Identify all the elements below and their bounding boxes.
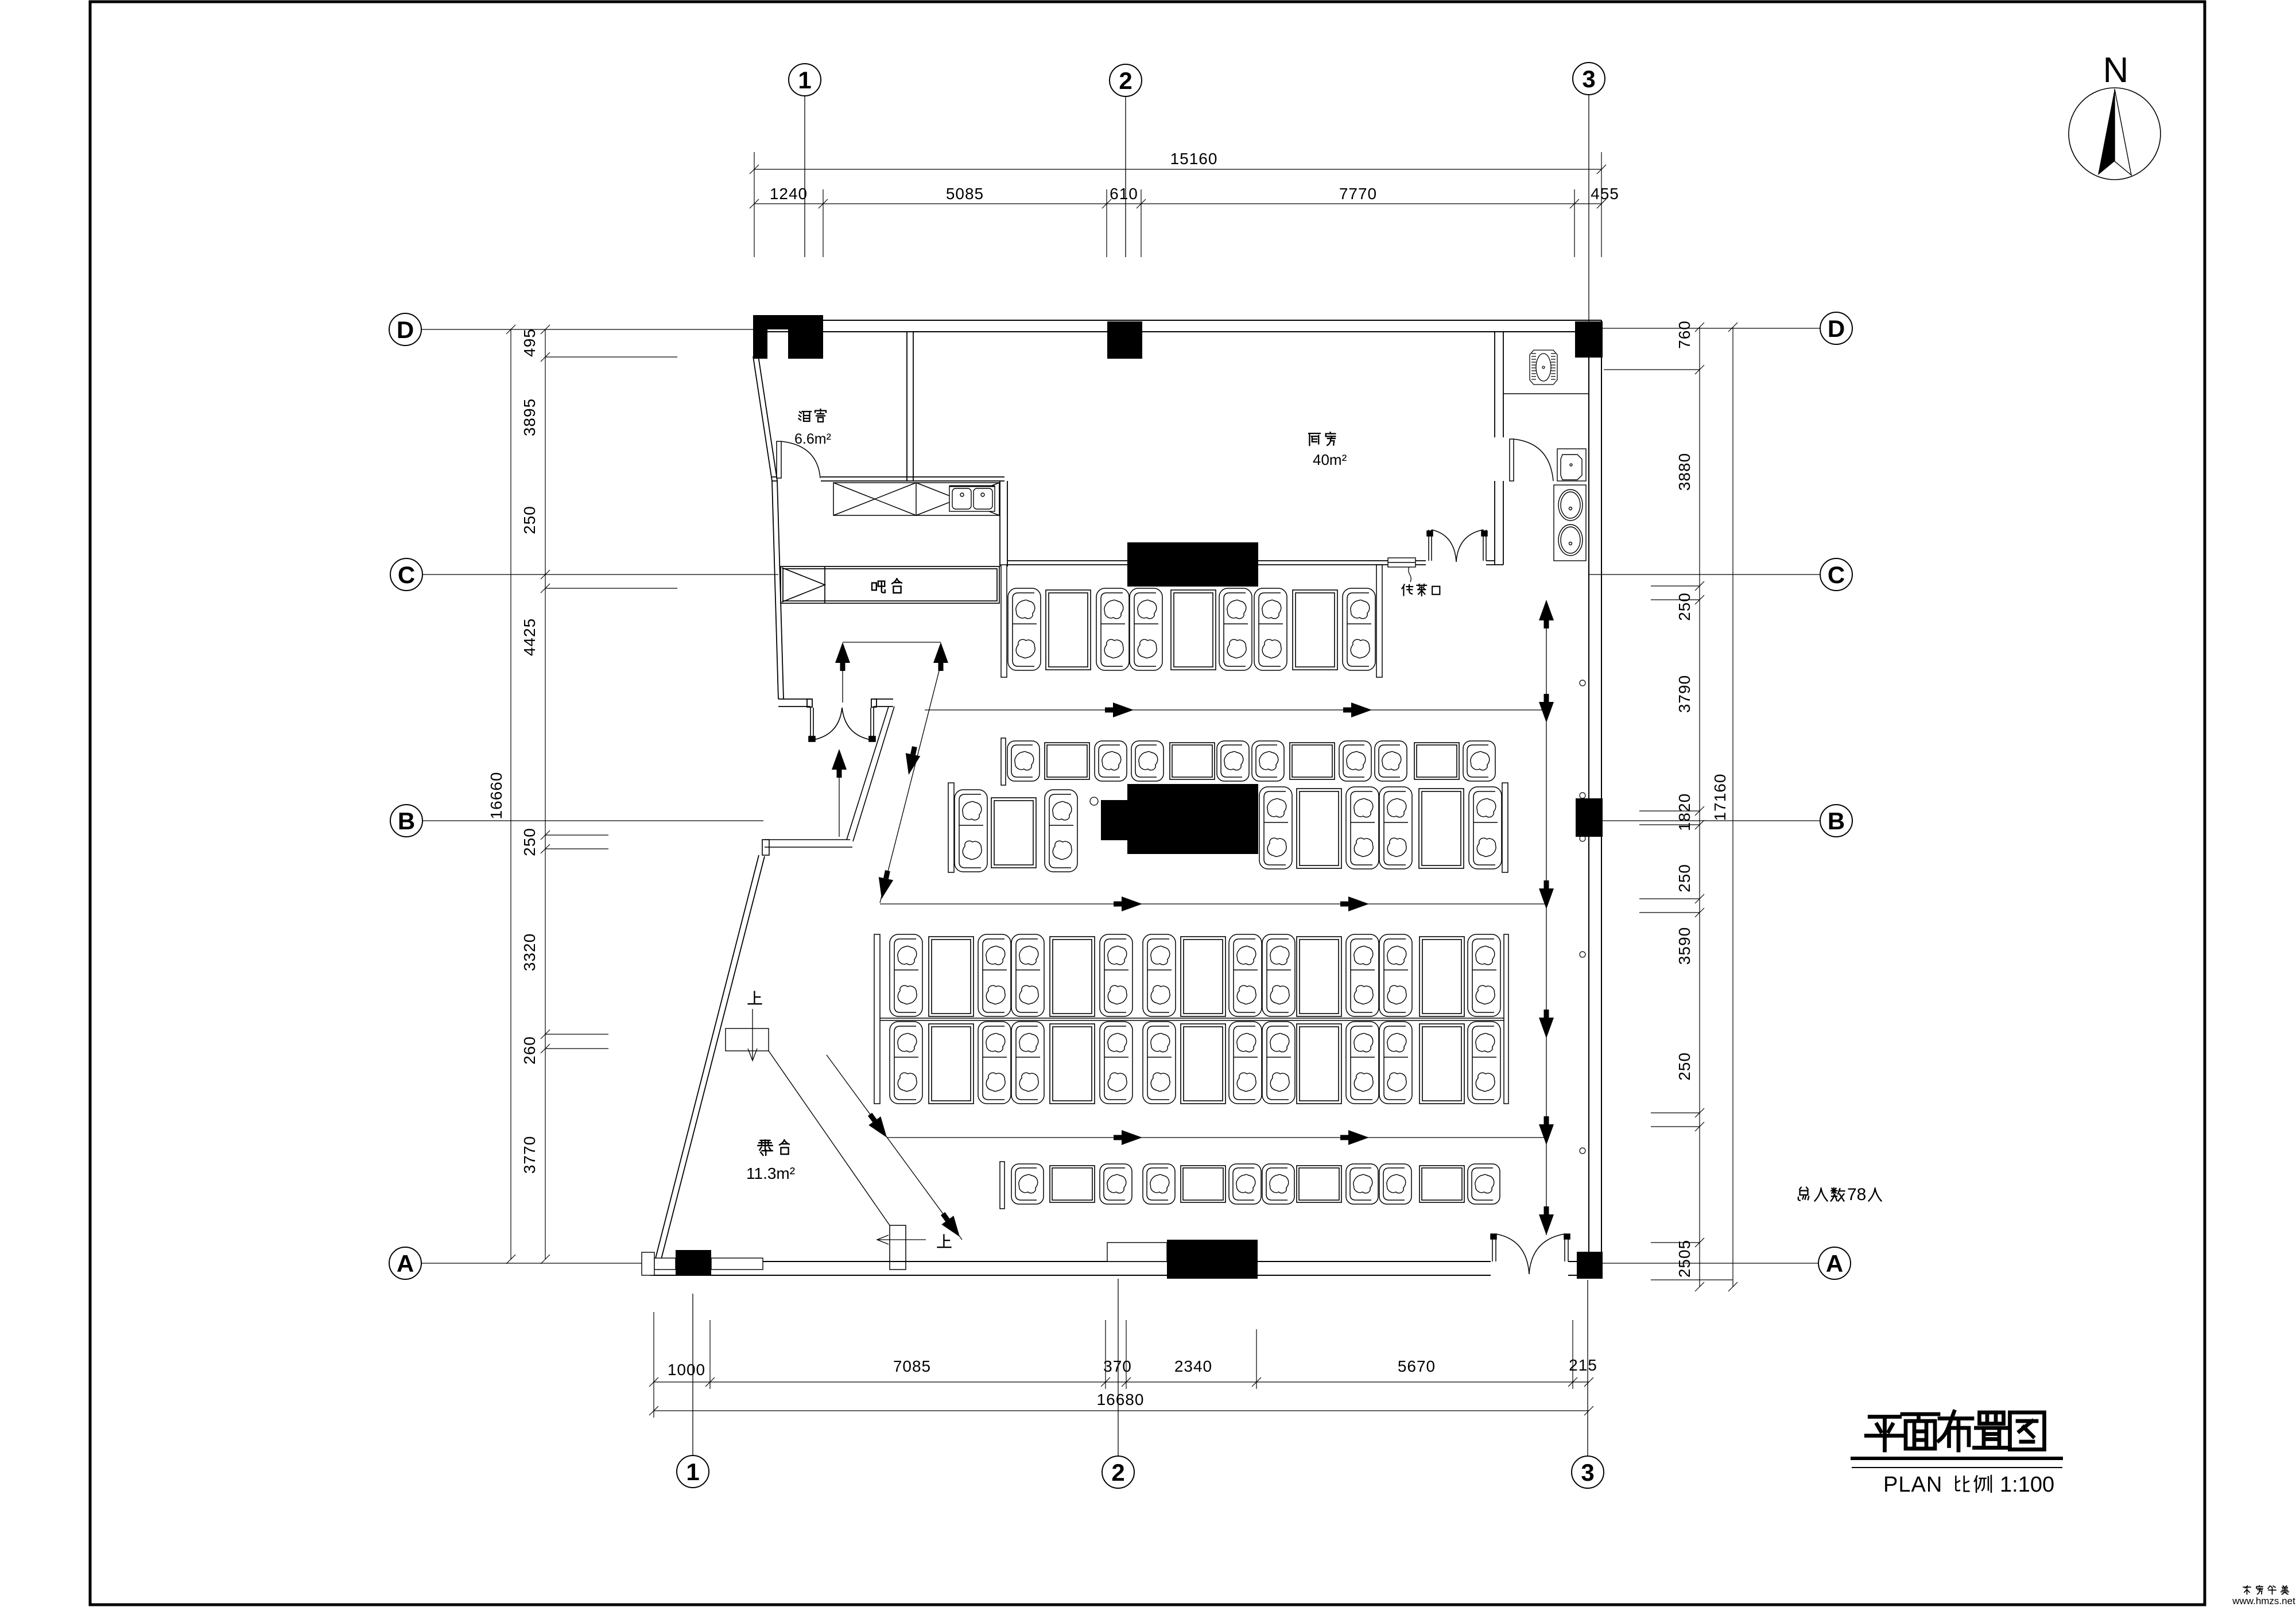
svg-text:C: C (1828, 561, 1845, 588)
svg-text:B: B (1828, 808, 1845, 834)
svg-text:1: 1 (686, 1458, 699, 1485)
svg-text:2340: 2340 (1174, 1357, 1212, 1375)
svg-text:1:100: 1:100 (2000, 1473, 2054, 1497)
svg-text:5085: 5085 (946, 185, 984, 203)
svg-text:www.hmzs.net: www.hmzs.net (2232, 1596, 2295, 1606)
svg-text:4425: 4425 (521, 618, 538, 656)
svg-text:215: 215 (1569, 1356, 1597, 1374)
svg-text:3320: 3320 (521, 933, 538, 971)
svg-text:455: 455 (1591, 185, 1619, 203)
svg-text:D: D (397, 316, 414, 343)
svg-text:2505: 2505 (1676, 1240, 1693, 1278)
svg-text:3590: 3590 (1676, 927, 1693, 965)
svg-text:PLAN: PLAN (1883, 1473, 1942, 1497)
svg-text:250: 250 (521, 506, 538, 534)
svg-text:250: 250 (1676, 1052, 1693, 1081)
svg-text:370: 370 (1103, 1357, 1132, 1375)
svg-text:495: 495 (521, 328, 538, 357)
svg-text:1820: 1820 (1676, 793, 1693, 831)
svg-text:3895: 3895 (521, 398, 538, 436)
svg-text:3: 3 (1582, 65, 1595, 92)
svg-text:1: 1 (798, 67, 811, 94)
svg-text:16660: 16660 (487, 772, 505, 820)
svg-text:16680: 16680 (1097, 1391, 1145, 1408)
svg-text:15160: 15160 (1170, 150, 1218, 168)
svg-text:6.6m²: 6.6m² (794, 431, 831, 447)
svg-text:C: C (398, 561, 415, 588)
svg-text:2: 2 (1119, 67, 1132, 94)
svg-text:3: 3 (1581, 1459, 1594, 1486)
svg-text:7770: 7770 (1339, 185, 1377, 203)
svg-text:A: A (1826, 1250, 1843, 1277)
svg-text:610: 610 (1110, 185, 1138, 203)
svg-text:40m²: 40m² (1313, 451, 1347, 468)
svg-text:3770: 3770 (521, 1136, 538, 1174)
svg-text:1240: 1240 (770, 185, 808, 203)
svg-text:3880: 3880 (1676, 453, 1693, 491)
svg-text:250: 250 (1676, 864, 1693, 892)
svg-text:17160: 17160 (1711, 774, 1729, 821)
svg-text:B: B (398, 808, 415, 834)
svg-text:5670: 5670 (1398, 1357, 1436, 1375)
svg-text:2: 2 (1111, 1459, 1124, 1486)
svg-text:N: N (2103, 51, 2129, 90)
svg-text:760: 760 (1676, 320, 1693, 349)
svg-text:78: 78 (1847, 1185, 1866, 1204)
svg-text:250: 250 (1676, 592, 1693, 621)
svg-text:3790: 3790 (1676, 675, 1693, 713)
svg-text:7085: 7085 (893, 1357, 931, 1375)
svg-text:260: 260 (521, 1036, 538, 1065)
svg-text:1000: 1000 (668, 1361, 705, 1379)
svg-text:D: D (1828, 315, 1845, 342)
svg-text:11.3m²: 11.3m² (746, 1165, 795, 1182)
svg-text:250: 250 (521, 828, 538, 856)
svg-text:A: A (397, 1250, 414, 1277)
